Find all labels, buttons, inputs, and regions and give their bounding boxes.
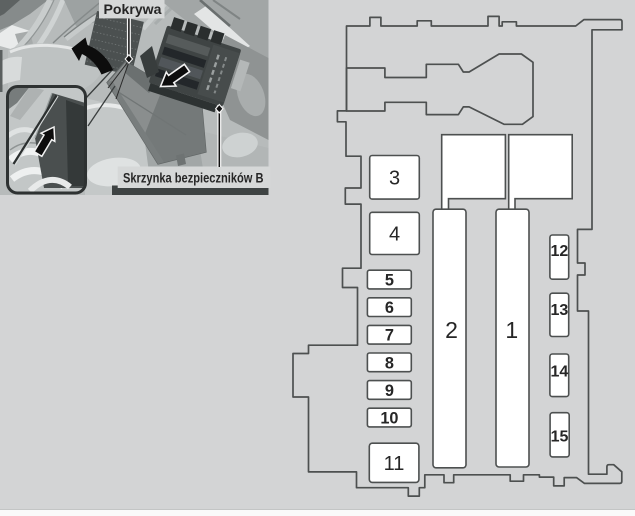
svg-text:5: 5 bbox=[385, 272, 394, 290]
svg-text:6: 6 bbox=[385, 299, 394, 317]
svg-text:Pokrywa: Pokrywa bbox=[104, 1, 162, 17]
svg-text:9: 9 bbox=[385, 382, 394, 400]
svg-text:10: 10 bbox=[380, 410, 398, 428]
svg-text:3: 3 bbox=[389, 167, 400, 189]
svg-text:2: 2 bbox=[445, 317, 458, 343]
svg-text:11: 11 bbox=[384, 453, 405, 475]
svg-text:4: 4 bbox=[389, 224, 400, 246]
svg-text:Skrzynka bezpieczników B: Skrzynka bezpieczników B bbox=[123, 169, 264, 185]
svg-text:13: 13 bbox=[551, 302, 569, 319]
svg-text:7: 7 bbox=[385, 327, 394, 345]
svg-text:14: 14 bbox=[551, 363, 569, 380]
svg-text:1: 1 bbox=[505, 317, 518, 343]
svg-text:8: 8 bbox=[385, 354, 394, 372]
svg-text:12: 12 bbox=[551, 243, 569, 260]
svg-text:15: 15 bbox=[551, 428, 569, 445]
